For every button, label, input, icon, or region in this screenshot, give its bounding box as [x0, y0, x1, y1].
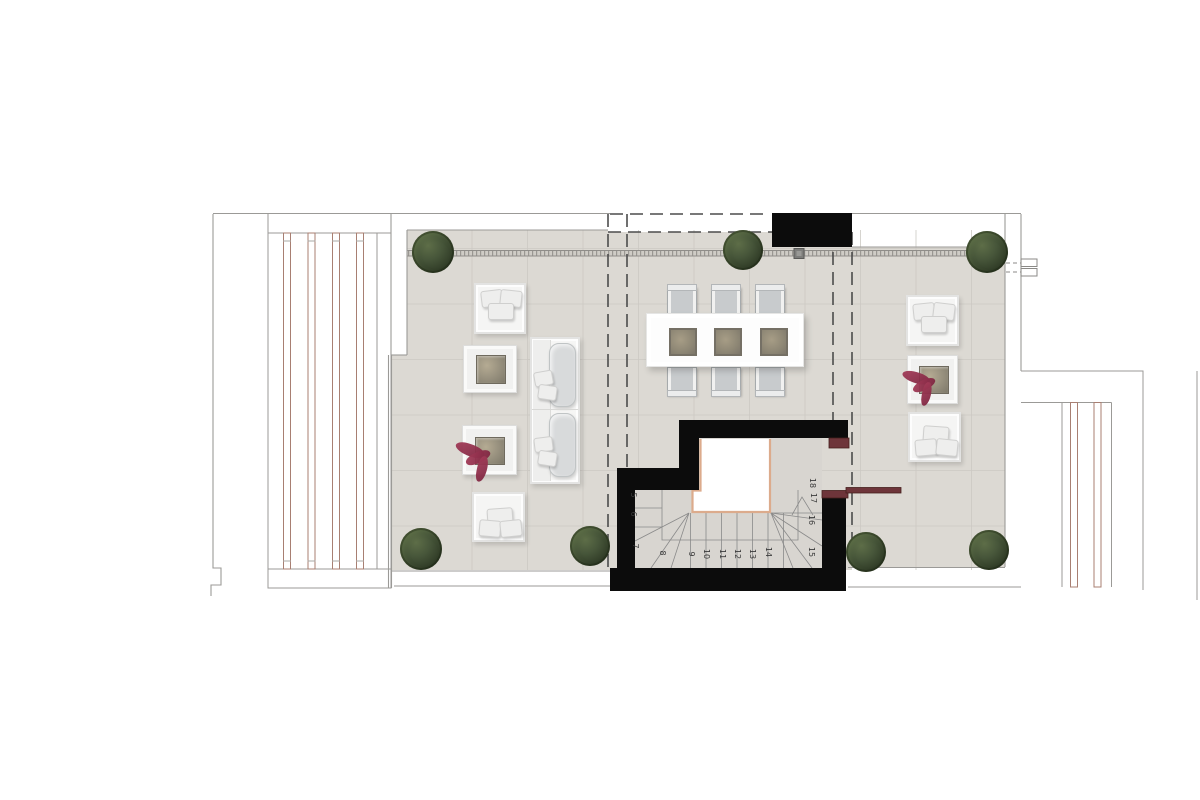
stair-step-number: 11: [717, 547, 727, 561]
coffee-table: [907, 355, 958, 404]
floor-plan: 56789101112131415161718: [0, 0, 1200, 800]
sofa: [530, 337, 580, 484]
tree: [723, 230, 763, 270]
cushion: [499, 519, 523, 538]
tray: [760, 328, 788, 356]
tray: [669, 328, 697, 356]
dining-chair: [711, 367, 741, 395]
stair-step-number: 16: [806, 513, 816, 527]
stair-step-number: 7: [630, 539, 640, 553]
stair-step-number: 6: [628, 507, 638, 521]
dining-chair: [755, 286, 785, 314]
cushion: [537, 450, 558, 468]
cushion: [914, 438, 937, 457]
cushion: [537, 384, 558, 401]
stair-step-number: 12: [732, 547, 742, 561]
cushion: [921, 316, 947, 333]
dining-chair: [667, 286, 697, 314]
rail-track: [407, 251, 1005, 257]
sofa-divider: [532, 409, 578, 410]
stair-step-number: 10: [701, 547, 711, 561]
stair-step-number: 18: [807, 476, 817, 490]
cushion: [478, 519, 501, 538]
tree: [400, 528, 442, 570]
stair-step-number: 5: [628, 488, 638, 502]
pergola-right: [1021, 371, 1197, 600]
stair-step-number: 9: [686, 547, 696, 561]
tree: [969, 530, 1009, 570]
armchair: [472, 492, 525, 542]
coffee-table: [462, 425, 517, 475]
stair-step-number: 17: [808, 491, 818, 505]
tree: [412, 231, 454, 273]
stair-step-number: 13: [747, 547, 757, 561]
armchair: [906, 295, 959, 346]
cushion: [488, 303, 514, 320]
tree: [846, 532, 886, 572]
coffee-table: [463, 345, 517, 393]
stair-step-number: 14: [763, 545, 773, 559]
dining-table: [646, 313, 804, 367]
armchair: [474, 283, 526, 334]
dining-chair: [711, 286, 741, 314]
stair-step-number: 8: [657, 546, 667, 560]
tree: [570, 526, 610, 566]
stone-tray: [476, 355, 506, 384]
tree: [966, 231, 1008, 273]
cushion: [935, 438, 959, 457]
pergola-left: [268, 214, 391, 589]
dining-chair: [667, 367, 697, 395]
tray: [714, 328, 742, 356]
stair-step-number: 15: [806, 545, 816, 559]
floor-plan-linework: [0, 0, 1200, 800]
armchair: [908, 412, 961, 462]
dining-chair: [755, 367, 785, 395]
